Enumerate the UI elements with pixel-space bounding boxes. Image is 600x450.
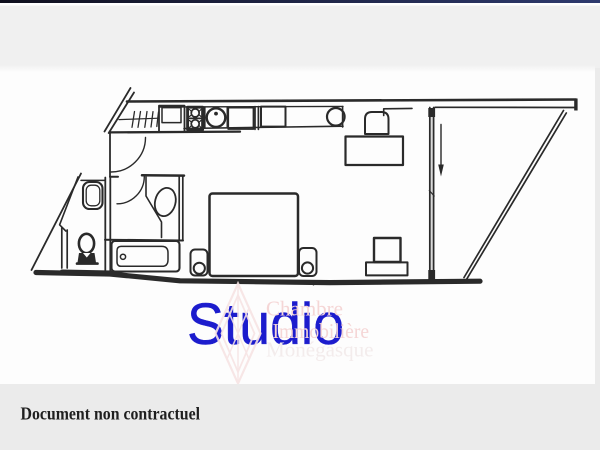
svg-text:Document non contractuel: Document non contractuel [21, 404, 201, 424]
svg-text:Monégasque: Monégasque [266, 338, 374, 362]
svg-text:Chambre: Chambre [266, 297, 343, 321]
